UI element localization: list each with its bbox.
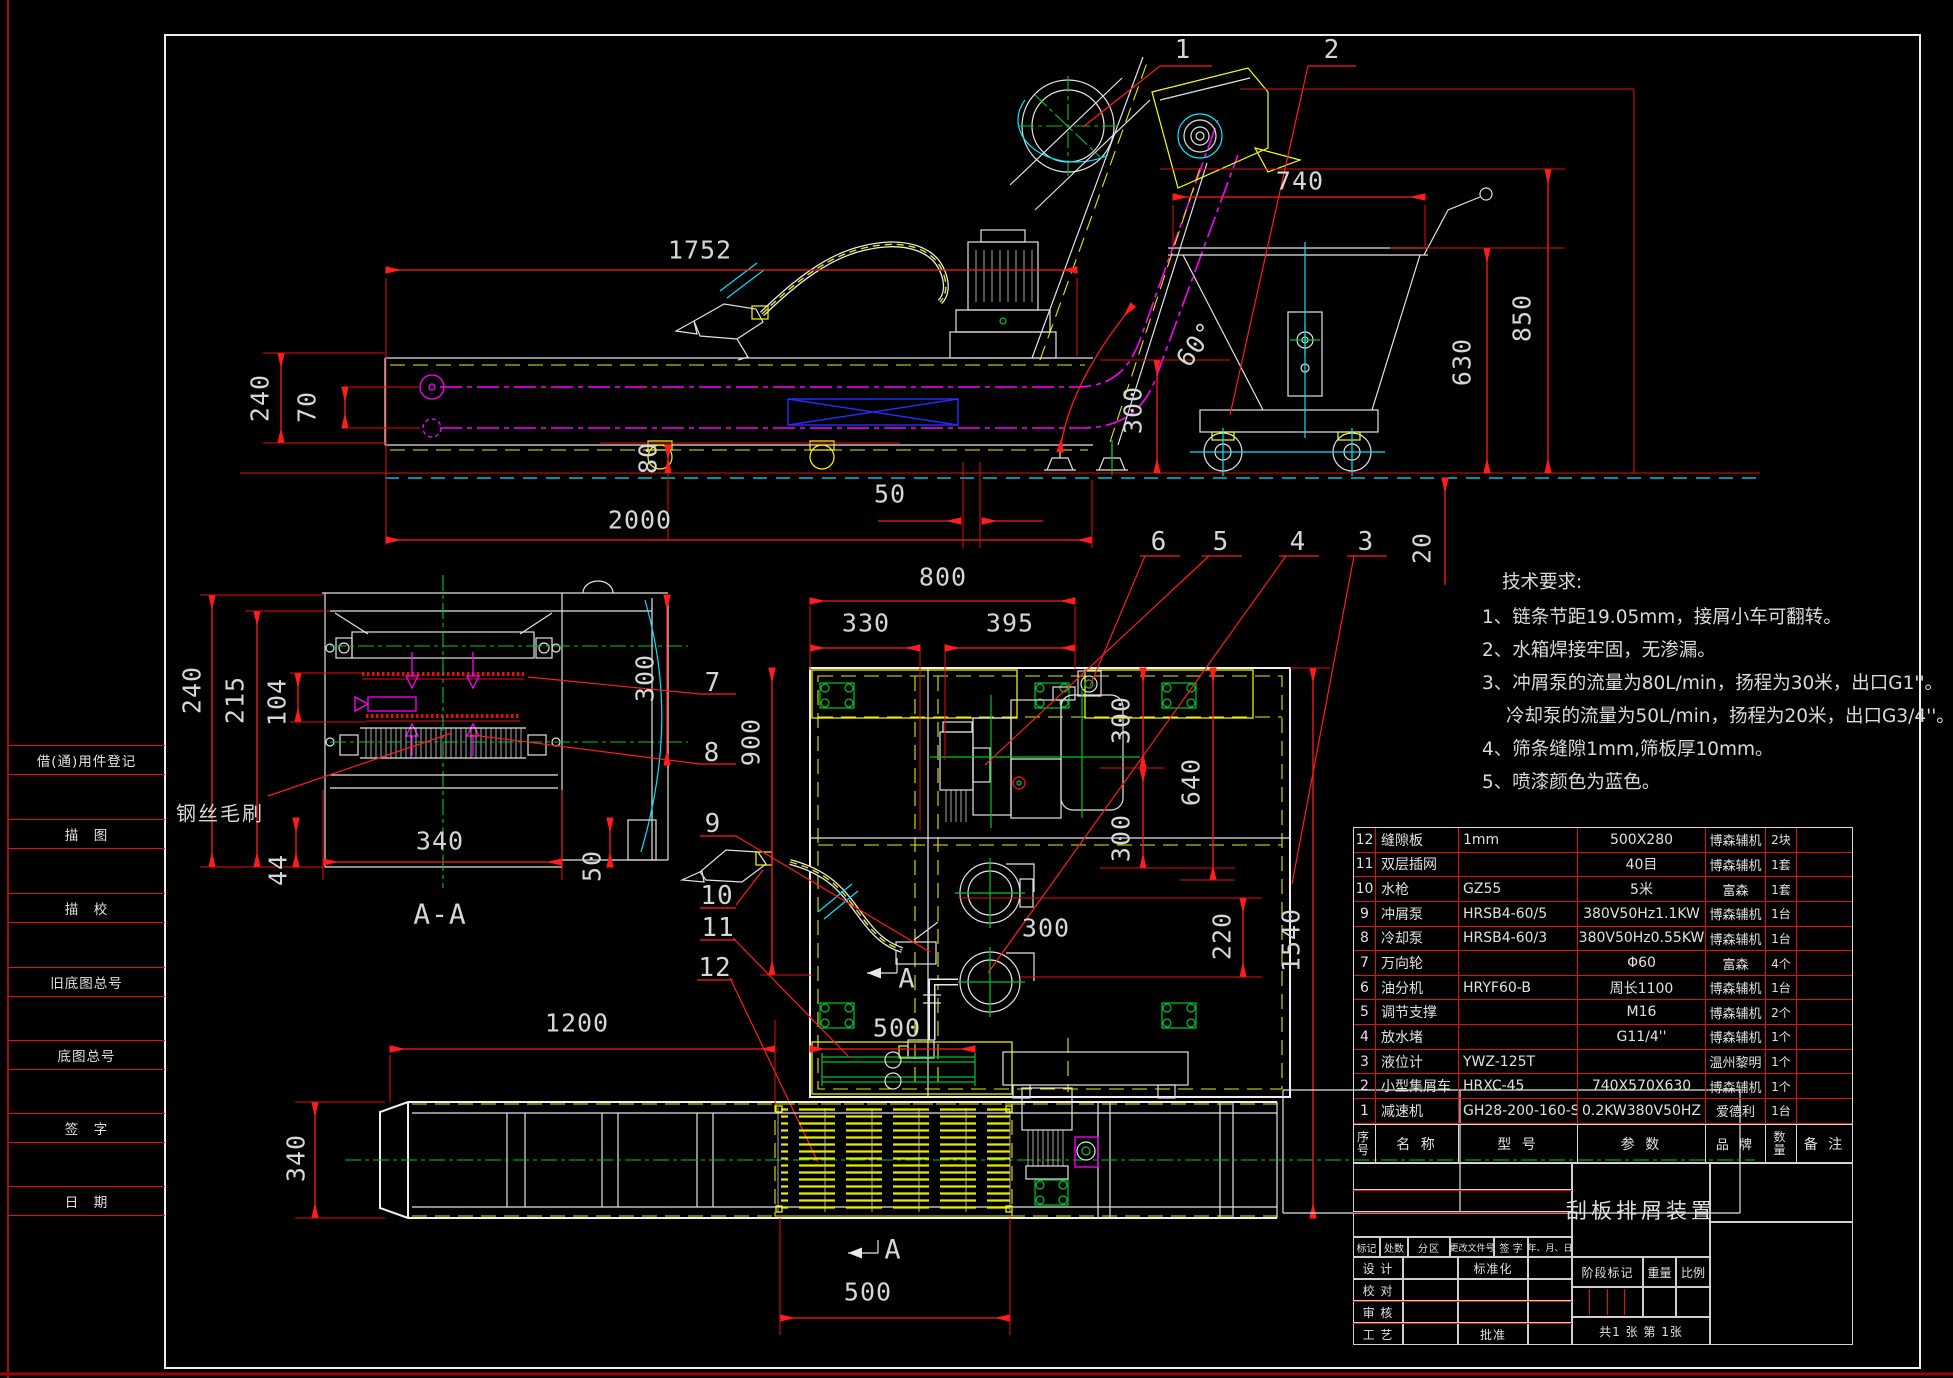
bom-row: 1减速机GH28-200-160-S0.2KW380V50HZ爱德利1台 <box>1354 1099 1852 1124</box>
bom-brand: 博森辅机 <box>1706 976 1766 1000</box>
bom-note <box>1797 828 1852 852</box>
bom-row: 11双层插网40目博森辅机1套 <box>1354 853 1852 878</box>
bom-no: 11 <box>1354 853 1376 877</box>
tech-requirement-line: 冷却泵的流量为50L/min，扬程为20米，出口G3/4''。 <box>1506 700 1948 733</box>
bom-no: 2 <box>1354 1074 1376 1098</box>
tech-requirement-line: 2、水箱焊接牢固，无渗漏。 <box>1482 634 1948 667</box>
bom-qty: 1套 <box>1766 853 1797 877</box>
tb-approve: 批准 <box>1458 1323 1528 1345</box>
title-block-cell <box>1403 1257 1458 1279</box>
bom-model <box>1459 853 1578 877</box>
bom-row: 12缝隙板1mm500X280博森辅机2块 <box>1354 828 1852 853</box>
title-block-cell <box>1710 1162 1853 1222</box>
bom-no: 10 <box>1354 877 1376 901</box>
title-block-cell <box>1403 1279 1458 1301</box>
bom-brand: 温州黎明 <box>1706 1050 1766 1074</box>
bom-model: GH28-200-160-S <box>1459 1099 1578 1123</box>
bom-model <box>1459 951 1578 975</box>
bom-name: 油分机 <box>1376 976 1459 1000</box>
title-block-cell <box>1528 1301 1572 1323</box>
bom-param: 周长1100 <box>1578 976 1706 1000</box>
bom-name: 减速机 <box>1376 1099 1459 1123</box>
bom-qty: 1台 <box>1766 976 1797 1000</box>
tech-requirements-title: 技术要求: <box>1502 566 1948 599</box>
bom-param: 380V50Hz0.55KW <box>1578 927 1706 951</box>
bom-model: 1mm <box>1459 828 1578 852</box>
bom-no: 3 <box>1354 1050 1376 1074</box>
bom-name: 冲屑泵 <box>1376 902 1459 926</box>
title-block-cell <box>1528 1323 1572 1345</box>
tb-scale: 比例 <box>1676 1257 1710 1287</box>
bom-header-note: 备 注 <box>1797 1125 1852 1163</box>
bom-brand: 博森辅机 <box>1706 1000 1766 1024</box>
title-block-cell <box>1643 1287 1676 1317</box>
top-view <box>240 57 1760 478</box>
bom-param: 740X570X630 <box>1578 1074 1706 1098</box>
stage-tick <box>1624 1289 1625 1315</box>
tb-change-doc: 更改文件号 <box>1450 1237 1494 1257</box>
bom-param: M16 <box>1578 1000 1706 1024</box>
bom-brand: 富森 <box>1706 877 1766 901</box>
bom-header-row: 序号 名 称 型 号 参 数 品 牌 数量 备 注 <box>1354 1124 1852 1163</box>
red-rule <box>1353 1301 1572 1302</box>
bom-row: 5调节支撑M16博森辅机2个 <box>1354 1000 1852 1025</box>
title-block-cell <box>1403 1301 1458 1323</box>
bom-model <box>1459 1000 1578 1024</box>
bom-note <box>1797 877 1852 901</box>
title-block-cell <box>1458 1301 1528 1323</box>
bom-row: 2小型集屑车HRXC-45740X570X630博森辅机1个 <box>1354 1074 1852 1099</box>
bom-name: 液位计 <box>1376 1050 1459 1074</box>
bom-brand: 博森辅机 <box>1706 1074 1766 1098</box>
bom-model: HRSB4-60/3 <box>1459 927 1578 951</box>
bom-model: GZ55 <box>1459 877 1578 901</box>
bom-note <box>1797 1025 1852 1049</box>
bom-brand: 富森 <box>1706 951 1766 975</box>
bom-qty: 2个 <box>1766 1000 1797 1024</box>
sidebar-item-old-master-no: 旧底图总号 <box>8 967 165 997</box>
bom-row: 3液位计YWZ-125T温州黎明1个 <box>1354 1050 1852 1075</box>
bom-note <box>1797 1099 1852 1123</box>
bom-note <box>1797 927 1852 951</box>
bom-param: 380V50Hz1.1KW <box>1578 902 1706 926</box>
bom-row: 10水枪GZ555米富森1套 <box>1354 877 1852 902</box>
bom-no: 1 <box>1354 1099 1376 1123</box>
tech-requirement-line: 4、筛条缝隙1mm,筛板厚10mm。 <box>1482 733 1948 766</box>
tech-requirement-line: 1、链条节距19.05mm，接屑小车可翻转。 <box>1482 601 1948 634</box>
tb-standard: 标准化 <box>1458 1257 1528 1279</box>
bom-note <box>1797 853 1852 877</box>
bom-brand: 博森辅机 <box>1706 828 1766 852</box>
title-block-cell <box>1710 1222 1853 1345</box>
sidebar-item-trace-check: 描 校 <box>8 893 165 923</box>
bom-note <box>1797 1074 1852 1098</box>
tb-mark: 标记 <box>1353 1237 1380 1257</box>
bom-param: 40目 <box>1578 853 1706 877</box>
bom-model: YWZ-125T <box>1459 1050 1578 1074</box>
bom-model: HRYF60-B <box>1459 976 1578 1000</box>
bom-note <box>1797 1050 1852 1074</box>
title-block-cell <box>1353 1190 1572 1212</box>
bom-note <box>1797 951 1852 975</box>
bom-row: 4放水堵G11/4''博森辅机1个 <box>1354 1025 1852 1050</box>
bom-no: 4 <box>1354 1025 1376 1049</box>
stage-tick <box>1589 1289 1590 1315</box>
bom-name: 调节支撑 <box>1376 1000 1459 1024</box>
bom-no: 7 <box>1354 951 1376 975</box>
tech-requirement-line: 5、喷漆颜色为蓝色。 <box>1482 766 1948 799</box>
bom-qty: 1台 <box>1766 927 1797 951</box>
bom-name: 冷却泵 <box>1376 927 1459 951</box>
tech-requirement-line: 3、冲屑泵的流量为80L/min，扬程为30米，出口G1''。 <box>1482 667 1948 700</box>
cad-drawing-sheet: 1752 740 850 630 240 70 300 80 2000 50 6… <box>0 0 1953 1378</box>
bom-row: 7万向轮Φ60富森4个 <box>1354 951 1852 976</box>
bom-param: 0.2KW380V50HZ <box>1578 1099 1706 1123</box>
title-block-cell <box>1458 1279 1528 1301</box>
plan-view <box>682 668 1290 1097</box>
technical-requirements: 技术要求: 1、链条节距19.05mm，接屑小车可翻转。 2、水箱焊接牢固，无渗… <box>1482 566 1948 799</box>
tb-check: 校 对 <box>1353 1279 1403 1301</box>
drawing-title: 刮板排屑装置 <box>1572 1162 1710 1257</box>
bom-qty: 1台 <box>1766 902 1797 926</box>
bom-param: G11/4'' <box>1578 1025 1706 1049</box>
bom-header-brand: 品 牌 <box>1706 1125 1766 1163</box>
tb-review: 审 核 <box>1353 1301 1403 1323</box>
bom-name: 放水堵 <box>1376 1025 1459 1049</box>
bom-brand: 博森辅机 <box>1706 1025 1766 1049</box>
tb-count: 处数 <box>1380 1237 1408 1257</box>
bom-no: 5 <box>1354 1000 1376 1024</box>
title-block-cell <box>1528 1257 1572 1279</box>
bom-table: 12缝隙板1mm500X280博森辅机2块 11双层插网40目博森辅机1套 10… <box>1353 827 1853 1164</box>
bom-param: 500X280 <box>1578 828 1706 852</box>
bom-header-no: 序号 <box>1354 1125 1376 1163</box>
bom-no: 8 <box>1354 927 1376 951</box>
bom-param: Φ60 <box>1578 951 1706 975</box>
tb-process: 工 艺 <box>1353 1323 1403 1345</box>
title-block-cell <box>1353 1212 1572 1237</box>
tb-date: 年、月、日 <box>1528 1237 1572 1257</box>
bom-qty: 1台 <box>1766 1099 1797 1123</box>
bom-name: 水枪 <box>1376 877 1459 901</box>
title-block-cell <box>1353 1162 1572 1190</box>
tb-stage-mark: 阶段标记 <box>1572 1257 1643 1287</box>
bom-header-qty: 数量 <box>1766 1125 1797 1163</box>
sidebar-item-date: 日 期 <box>8 1186 165 1216</box>
bom-brand: 爱德利 <box>1706 1099 1766 1123</box>
section-aa-view <box>200 575 700 888</box>
sidebar-item-signature: 签 字 <box>8 1113 165 1143</box>
bom-no: 12 <box>1354 828 1376 852</box>
bom-note <box>1797 902 1852 926</box>
bom-row: 9冲屑泵HRSB4-60/5380V50Hz1.1KW博森辅机1台 <box>1354 902 1852 927</box>
bom-qty: 1个 <box>1766 1074 1797 1098</box>
bom-header-param: 参 数 <box>1578 1125 1706 1163</box>
bom-note <box>1797 1000 1852 1024</box>
bom-no: 6 <box>1354 976 1376 1000</box>
red-rule <box>1353 1190 1572 1191</box>
tb-zone: 分区 <box>1408 1237 1450 1257</box>
sidebar-item-trace-drawing: 描 图 <box>8 819 165 849</box>
tb-design: 设 计 <box>1353 1257 1403 1279</box>
bom-param: 5米 <box>1578 877 1706 901</box>
title-block-cell <box>1528 1279 1572 1301</box>
bom-model: HRSB4-60/5 <box>1459 902 1578 926</box>
bom-qty: 2块 <box>1766 828 1797 852</box>
bom-note <box>1797 976 1852 1000</box>
bom-model: HRXC-45 <box>1459 1074 1578 1098</box>
tb-sign: 签 字 <box>1494 1237 1528 1257</box>
bom-header-model: 型 号 <box>1459 1125 1578 1163</box>
bom-row: 8冷却泵HRSB4-60/3380V50Hz0.55KW博森辅机1台 <box>1354 927 1852 952</box>
red-rule <box>1353 1323 1572 1324</box>
bom-name: 双层插网 <box>1376 853 1459 877</box>
bom-brand: 博森辅机 <box>1706 853 1766 877</box>
title-block-cell <box>1403 1323 1458 1345</box>
bom-brand: 博森辅机 <box>1706 927 1766 951</box>
sidebar-item-master-no: 底图总号 <box>8 1040 165 1070</box>
sidebar-item-borrowed-parts: 借(通)用件登记 <box>8 745 165 775</box>
title-block-cell <box>1676 1287 1710 1317</box>
bom-name: 缝隙板 <box>1376 828 1459 852</box>
bom-row: 6油分机HRYF60-B周长1100博森辅机1台 <box>1354 976 1852 1001</box>
bom-qty: 1个 <box>1766 1025 1797 1049</box>
tb-weight: 重量 <box>1643 1257 1676 1287</box>
bom-qty: 4个 <box>1766 951 1797 975</box>
bom-name: 小型集屑车 <box>1376 1074 1459 1098</box>
tb-sheet-count: 共1 张 第 1张 <box>1572 1317 1710 1345</box>
bom-qty: 1套 <box>1766 877 1797 901</box>
bom-header-name: 名 称 <box>1376 1125 1459 1163</box>
top-view-dimensions <box>263 66 1634 585</box>
bom-no: 9 <box>1354 902 1376 926</box>
bom-brand: 博森辅机 <box>1706 902 1766 926</box>
bom-model <box>1459 1025 1578 1049</box>
bom-name: 万向轮 <box>1376 951 1459 975</box>
red-rule <box>1353 1212 1572 1213</box>
bom-param <box>1578 1050 1706 1074</box>
stage-tick <box>1607 1289 1608 1315</box>
bom-qty: 1个 <box>1766 1050 1797 1074</box>
